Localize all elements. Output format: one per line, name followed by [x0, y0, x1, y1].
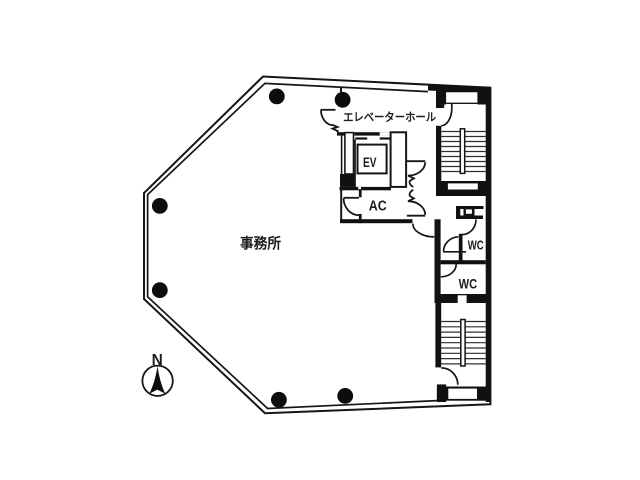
svg-text:N: N	[152, 352, 163, 369]
svg-text:事務所: 事務所	[240, 235, 281, 253]
svg-text:WC: WC	[468, 237, 484, 252]
svg-text:EV: EV	[363, 154, 377, 170]
svg-text:WC: WC	[459, 277, 478, 292]
svg-text:エレベーターホール: エレベーターホール	[343, 110, 436, 124]
svg-text:AC: AC	[369, 199, 387, 215]
